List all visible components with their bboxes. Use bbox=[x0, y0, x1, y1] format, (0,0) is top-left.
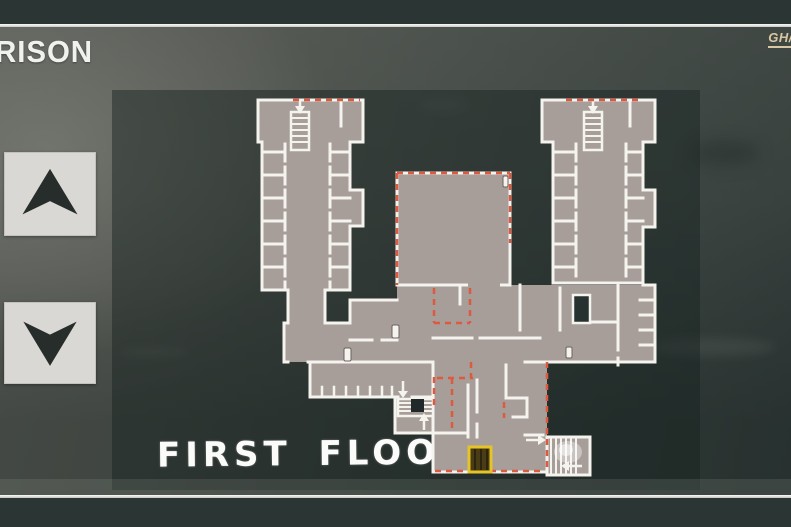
top-bar bbox=[0, 0, 791, 24]
bottom-bar bbox=[0, 498, 791, 527]
floor-down-button[interactable] bbox=[4, 302, 96, 384]
page-title: RISON bbox=[0, 34, 93, 70]
floor-label: FIRST FLOOR bbox=[157, 432, 472, 475]
wall-smudge bbox=[690, 140, 760, 166]
bottom-band bbox=[0, 479, 791, 495]
up-arrow-icon bbox=[12, 161, 88, 227]
game-screen: RISON GH// FIRST FLOOR bbox=[0, 0, 791, 527]
floor-up-button[interactable] bbox=[4, 152, 96, 236]
watermark-text: GH// bbox=[768, 30, 791, 48]
top-separator-line bbox=[0, 24, 791, 27]
down-arrow-icon bbox=[12, 311, 88, 375]
map-panel bbox=[112, 90, 700, 490]
